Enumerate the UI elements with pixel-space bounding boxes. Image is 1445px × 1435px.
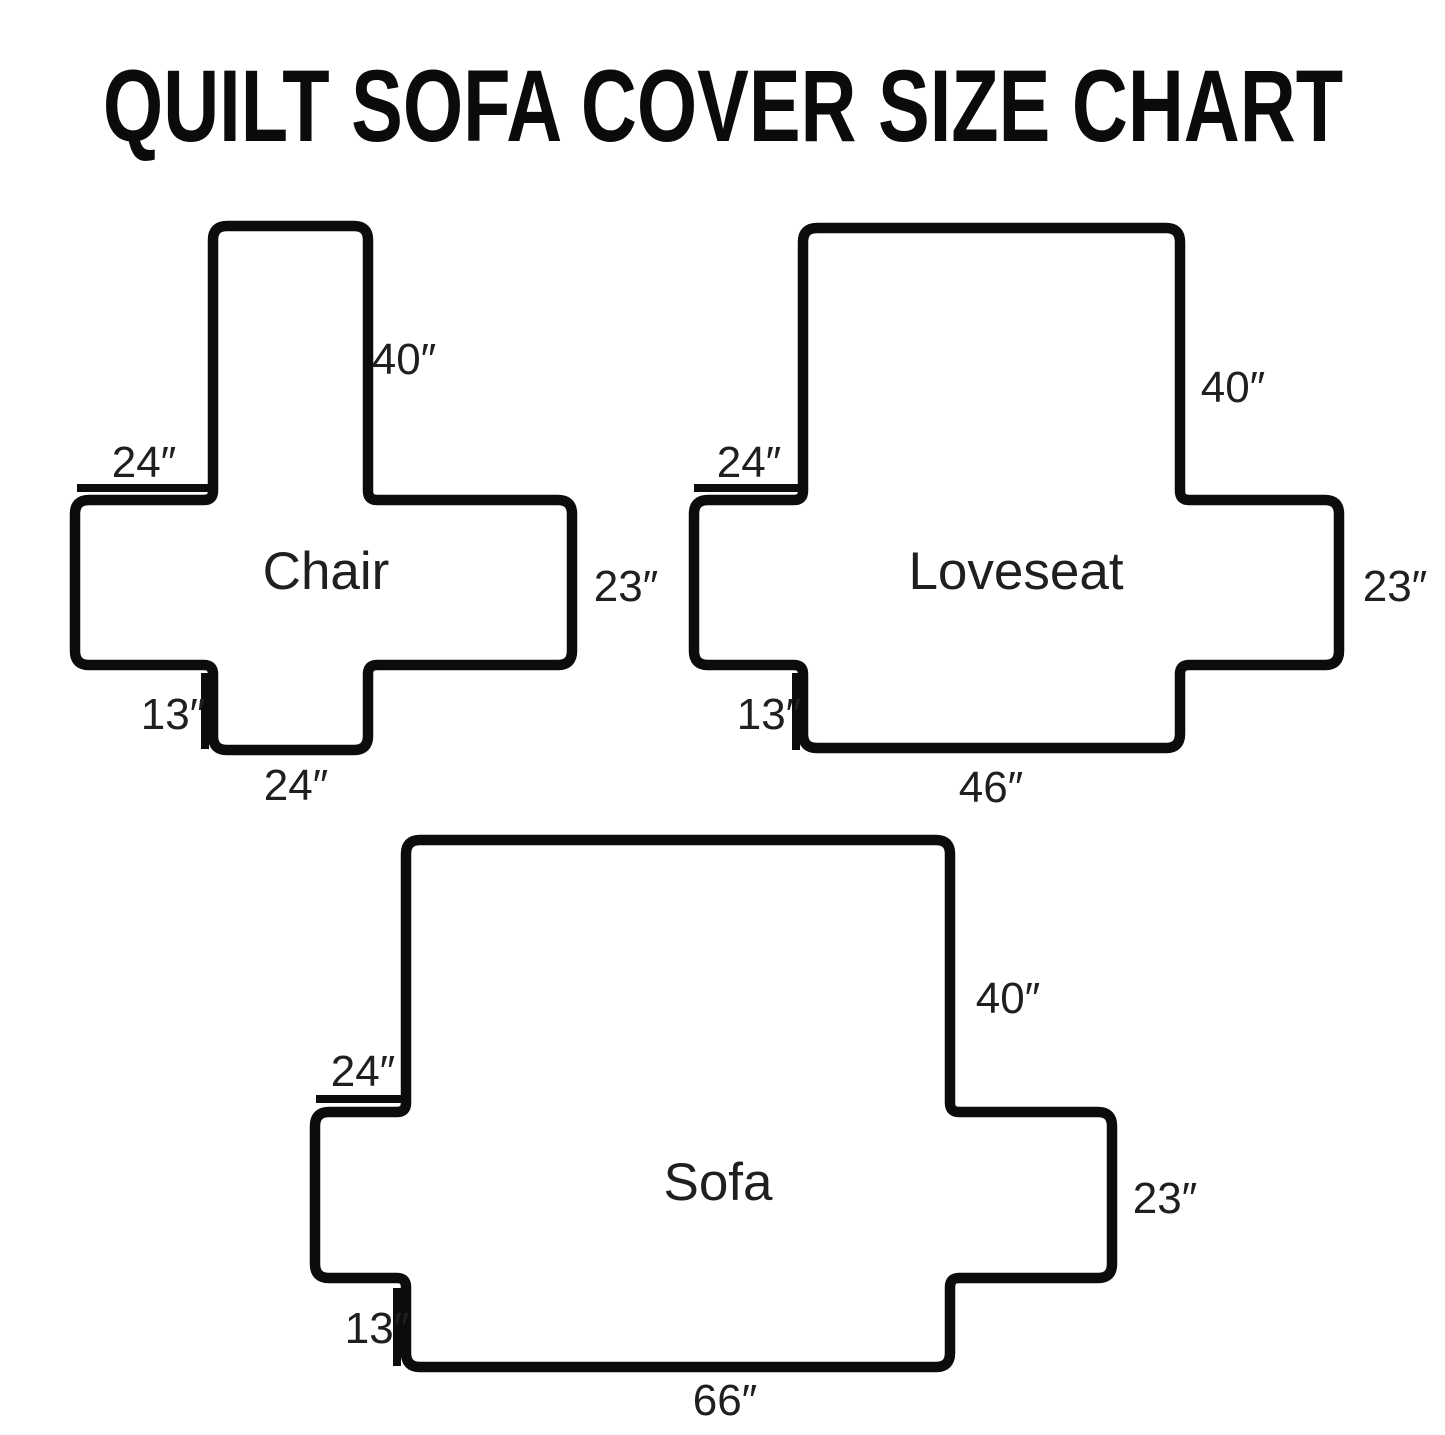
loveseat-side-height-label: 23″ [1363, 562, 1428, 611]
size-chart-canvas: QUILT SOFA COVER SIZE CHART Chair 40″ 24… [0, 0, 1445, 1435]
sofa-side-height-label: 23″ [1133, 1174, 1198, 1223]
loveseat-back-length-label: 40″ [1201, 363, 1266, 412]
sofa-arm-width-label: 24″ [331, 1047, 396, 1096]
chair-side-height-label: 23″ [594, 562, 659, 611]
loveseat-arm-width-label: 24″ [717, 438, 782, 487]
sofa-front-width-label: 66″ [693, 1376, 758, 1425]
sofa-back-length-label: 40″ [976, 974, 1041, 1023]
sofa-diagram: Sofa 40″ 24″ 23″ 13″ 66″ [315, 840, 1197, 1425]
page-title: QUILT SOFA COVER SIZE CHART [103, 50, 1343, 164]
chair-arm-width-label: 24″ [112, 438, 177, 487]
chair-front-width-label: 24″ [264, 761, 329, 810]
sofa-skirt-height-label: 13″ [345, 1304, 410, 1353]
loveseat-skirt-height-label: 13″ [737, 690, 802, 739]
chair-diagram: Chair 40″ 24″ 23″ 13″ 24″ [75, 226, 658, 810]
chair-skirt-height-label: 13″ [141, 690, 206, 739]
chair-back-length-label: 40″ [372, 335, 437, 384]
chair-name-label: Chair [263, 542, 390, 601]
loveseat-diagram: Loveseat 40″ 24″ 23″ 13″ 46″ [694, 228, 1427, 812]
quilt-sofa-cover-size-chart: QUILT SOFA COVER SIZE CHART Chair 40″ 24… [0, 0, 1445, 1435]
sofa-name-label: Sofa [663, 1153, 773, 1212]
sofa-cover-outline [315, 840, 1112, 1367]
loveseat-front-width-label: 46″ [959, 763, 1024, 812]
loveseat-name-label: Loveseat [908, 542, 1123, 601]
